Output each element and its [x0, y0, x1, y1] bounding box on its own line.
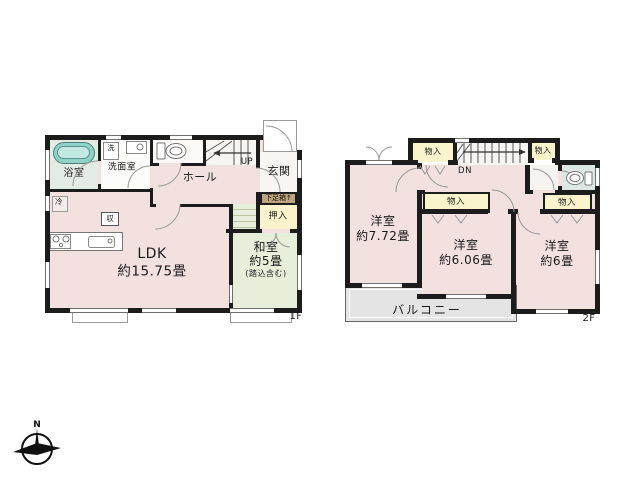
- wall: [511, 309, 536, 314]
- f1-storage-box: 収: [101, 212, 119, 226]
- compass-needle: [35, 429, 40, 450]
- f2-floor-tag: 2F: [582, 314, 595, 324]
- wall: [417, 163, 422, 169]
- wall: [180, 204, 233, 207]
- f1-stove: [50, 234, 71, 249]
- wall: [486, 294, 516, 299]
- wall: [153, 163, 159, 166]
- window: [455, 138, 469, 143]
- f1-fumikomi-step: [233, 204, 256, 229]
- wall: [516, 209, 518, 214]
- wall: [525, 165, 530, 192]
- wall: [558, 186, 562, 192]
- compass-north-letter: N: [33, 420, 41, 430]
- wall: [558, 165, 562, 171]
- wall: [345, 160, 350, 288]
- wall: [45, 189, 153, 192]
- f1-floor-tag: 1F: [289, 312, 302, 322]
- wall: [256, 135, 260, 168]
- f1-bathtub-inner: [57, 146, 90, 159]
- f1-washitsu-name: 和室: [253, 241, 278, 253]
- f1-washing-machine: 洗: [103, 142, 119, 160]
- wall: [45, 135, 263, 140]
- f1-fridge-space: 冷: [52, 196, 68, 212]
- window: [595, 250, 600, 284]
- f2-closet-top-right-label: 物入: [535, 147, 552, 155]
- floorplan-canvas: 下足箱↑ 洗 冷 収 浴室 洗面室 ホール UP 玄関 押: [0, 0, 640, 480]
- f1-washbasin: [126, 141, 147, 154]
- window: [45, 262, 50, 288]
- window: [297, 255, 302, 290]
- f2-dn-label: DN: [458, 167, 472, 176]
- compass-rose: N: [10, 416, 64, 474]
- f2-room2-size: 約6.06畳: [439, 254, 493, 266]
- window: [45, 150, 50, 180]
- window: [362, 283, 402, 288]
- f1-ldk-name: LDK: [137, 247, 166, 261]
- wall: [540, 209, 600, 214]
- wall: [256, 192, 260, 233]
- window: [70, 308, 128, 313]
- f1-shoe-cabinet: 下足箱↑: [260, 192, 297, 205]
- wall: [203, 135, 206, 166]
- wall: [417, 209, 488, 214]
- f1-up-label: UP: [241, 158, 253, 167]
- sliding-door: [229, 285, 233, 303]
- window: [230, 308, 274, 313]
- f2-stairs-floor: [457, 143, 528, 165]
- f2-room3-size: 約6畳: [540, 255, 573, 267]
- f2-room1-size: 約7.72畳: [356, 230, 410, 242]
- window: [366, 160, 392, 165]
- wall: [150, 135, 153, 166]
- f1-porch: [263, 120, 297, 152]
- wall: [229, 233, 233, 285]
- f1-terrace-right: [230, 313, 292, 323]
- wall: [448, 160, 458, 165]
- window: [446, 294, 486, 299]
- window: [595, 168, 600, 186]
- wall: [552, 158, 560, 163]
- wall: [408, 138, 560, 143]
- f2-closet-mid-label: 物入: [447, 198, 465, 207]
- f1-ldk-size: 約15.75畳: [117, 265, 186, 279]
- f2-toilet-anteroom: [530, 165, 558, 190]
- wall: [290, 229, 297, 233]
- wall: [417, 192, 422, 288]
- f1-oshiire-label: 押入: [268, 213, 287, 222]
- window: [170, 135, 192, 140]
- f2-closet-top-left-label: 物入: [425, 148, 442, 156]
- wall: [98, 135, 101, 161]
- window: [142, 308, 176, 313]
- wall: [402, 283, 422, 288]
- f2-balcony-label: バルコニー: [392, 304, 462, 316]
- compass-wings: [13, 443, 61, 455]
- f1-kitchen-sink: [88, 236, 115, 248]
- f1-entrance-label: 玄関: [268, 166, 291, 177]
- window: [536, 309, 568, 314]
- wall: [153, 204, 156, 207]
- f2-closet-right-label: 物入: [558, 199, 576, 208]
- wall: [557, 160, 600, 165]
- f2-room1-name: 洋室: [370, 215, 395, 227]
- f2-toilet-floor: [562, 165, 595, 192]
- f1-terrace-left: [72, 313, 128, 323]
- f2-room2-name: 洋室: [453, 239, 478, 251]
- window: [45, 196, 50, 211]
- wall: [525, 190, 533, 194]
- f1-washroom-label: 洗面室: [108, 164, 137, 173]
- f2-room3-name: 洋室: [544, 240, 569, 252]
- wall: [345, 283, 362, 288]
- f1-bathtub: [53, 142, 95, 164]
- window: [297, 160, 302, 178]
- wall: [417, 294, 446, 299]
- wall: [528, 158, 534, 163]
- window: [106, 135, 121, 140]
- wall: [417, 190, 425, 194]
- f1-hall-label: ホール: [183, 172, 218, 183]
- f1-washitsu-size: 約5畳: [249, 255, 282, 267]
- f1-toilet-floor: [153, 140, 203, 163]
- f1-bath-label: 浴室: [64, 169, 85, 179]
- f1-washitsu-note: (踏込含む): [245, 270, 286, 278]
